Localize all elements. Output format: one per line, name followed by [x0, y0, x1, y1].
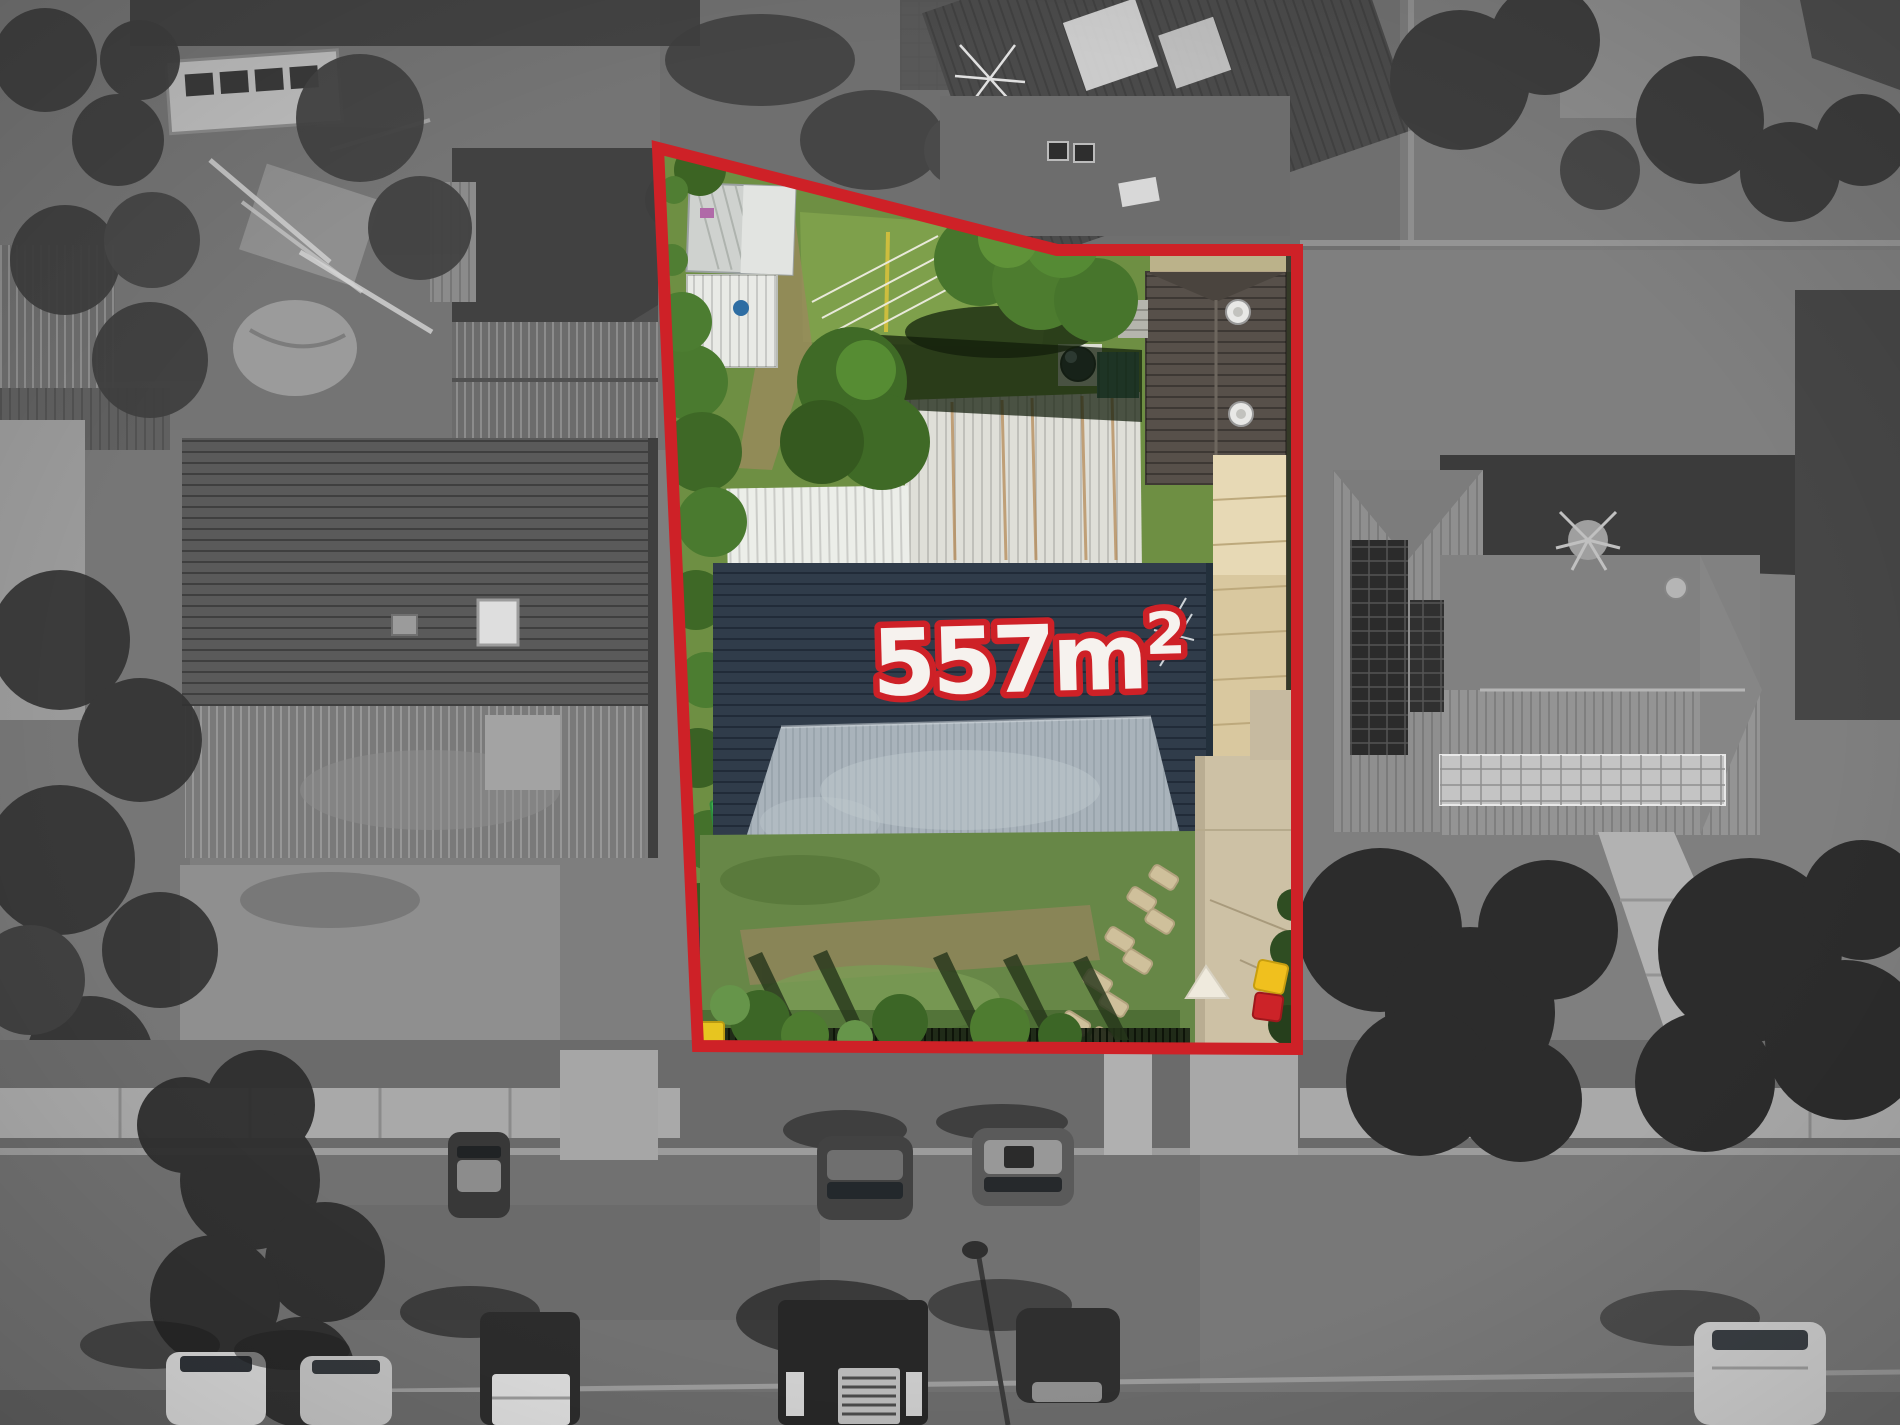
area-label: 557m2: [871, 599, 1184, 717]
area-superscript: 2: [1144, 599, 1182, 668]
aerial-photo: 557m2: [0, 0, 1900, 1425]
aerial-scene: 557m2: [0, 0, 1900, 1425]
area-value: 557m: [871, 603, 1146, 717]
